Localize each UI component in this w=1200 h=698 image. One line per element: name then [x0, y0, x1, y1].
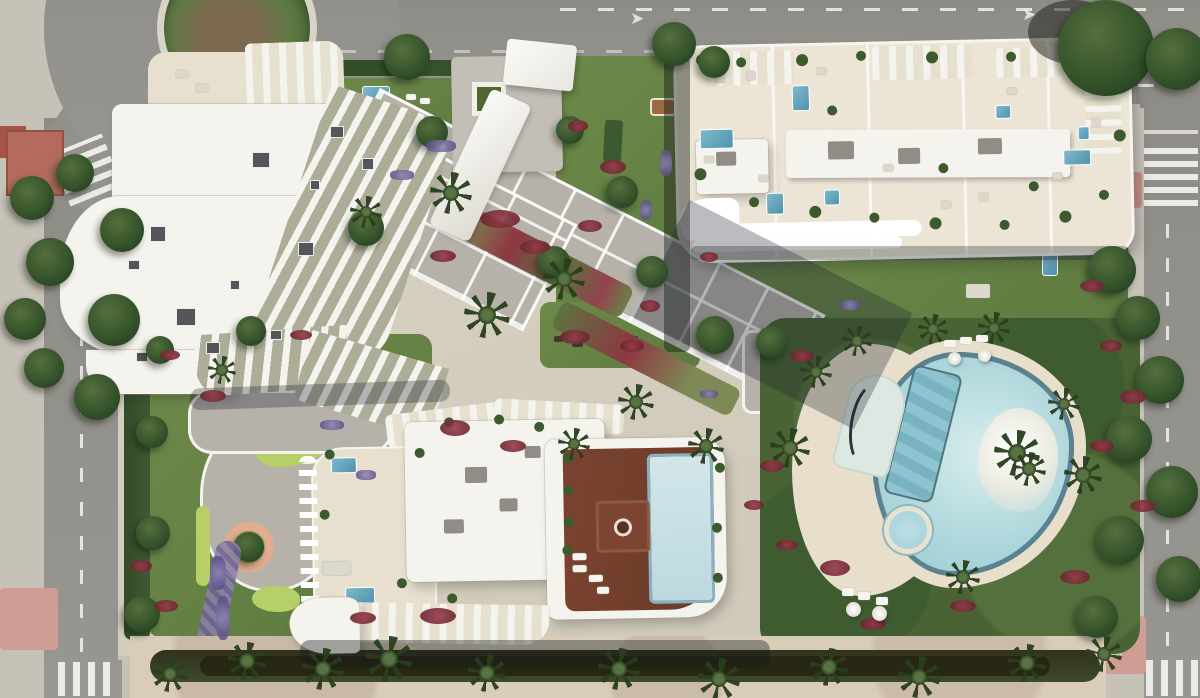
sun-lounger — [976, 335, 988, 342]
minigolf-green-3 — [252, 586, 300, 612]
flower-bed-red — [820, 560, 850, 576]
flower-bed-purple — [700, 390, 718, 398]
flower-bed-red — [560, 330, 590, 344]
tree-canopy — [1106, 416, 1152, 462]
palm-tree — [558, 428, 590, 460]
roof-plant — [827, 105, 837, 115]
sun-lounger — [573, 565, 587, 572]
sun-lounger — [858, 592, 870, 600]
flower-bed-red — [350, 612, 376, 624]
palm-tree — [208, 356, 236, 384]
garden-shed — [603, 120, 623, 163]
roof-plant — [1099, 190, 1109, 200]
flower-bed-purple — [320, 420, 344, 430]
tree-canopy — [698, 46, 730, 78]
plunge-pool — [995, 105, 1011, 119]
palm-tree — [1064, 456, 1102, 494]
b1-garden-lounger — [420, 98, 430, 104]
kids-pool — [884, 506, 932, 554]
flower-bed-red — [760, 460, 784, 472]
flower-bed-purple — [390, 170, 414, 180]
palm-tree — [688, 428, 724, 464]
tree-canopy — [756, 326, 788, 358]
palm-tree — [1086, 636, 1122, 672]
pink-paving-left-a — [0, 588, 58, 650]
palm-tree — [598, 648, 640, 690]
flower-bed-red — [640, 300, 660, 312]
roof-unit — [444, 519, 464, 533]
roof-furniture — [979, 192, 988, 201]
tree-canopy — [1116, 296, 1160, 340]
roof-plant — [929, 217, 941, 229]
roof-furniture — [1091, 118, 1100, 127]
sun-lounger — [589, 575, 603, 582]
sun-lounger — [960, 337, 972, 344]
flower-bed-red — [290, 330, 312, 340]
roof-furniture — [1053, 173, 1063, 180]
palm-tree — [918, 314, 948, 344]
b2-pergola — [872, 45, 973, 81]
tree-canopy — [384, 34, 430, 80]
tree-canopy — [636, 256, 668, 288]
flower-bed-purple — [216, 596, 230, 640]
flower-bed-red — [480, 210, 520, 228]
crosswalk-right-bottom — [1146, 660, 1200, 696]
flower-bed-red — [200, 390, 226, 402]
tree-canopy — [10, 176, 54, 220]
tree-canopy — [1156, 556, 1200, 602]
flower-bed-red — [130, 560, 152, 572]
tree-canopy — [606, 176, 638, 208]
b3-dining-table — [323, 561, 351, 575]
crosswalk-left-bottom — [58, 662, 116, 696]
garden-furniture — [966, 284, 990, 298]
flower-bed-purple — [640, 200, 652, 220]
plunge-pool — [766, 193, 784, 215]
roof-unit — [525, 446, 541, 458]
roof-unit — [465, 467, 487, 483]
flower-bed-red — [776, 540, 798, 550]
b2-roof-unit — [898, 148, 920, 164]
rooftop-vent — [230, 280, 240, 290]
palm-tree — [1008, 644, 1046, 682]
tree-canopy — [696, 316, 734, 354]
roof-plant — [534, 422, 544, 432]
tree-canopy — [136, 516, 170, 550]
b3-plunge-pool-north — [331, 457, 357, 473]
flower-bed-red — [1120, 390, 1146, 404]
palm-tree — [302, 648, 344, 690]
flower-bed-red — [568, 120, 588, 132]
parasol — [978, 349, 991, 362]
flower-bed-red — [160, 350, 180, 360]
rooftop-vent — [206, 342, 220, 354]
roof-plant — [1114, 129, 1126, 141]
rooftop-vent — [150, 226, 166, 242]
flower-bed-red — [440, 420, 470, 436]
sun-lounger — [572, 553, 586, 560]
tree-canopy — [100, 208, 144, 252]
flower-bed-purple — [660, 150, 672, 176]
flower-bed-red — [578, 220, 602, 232]
palm-tree — [430, 172, 472, 214]
tree-canopy — [1146, 28, 1200, 90]
flower-bed-red — [1060, 570, 1090, 584]
rooftop-vent — [270, 330, 282, 340]
palm-tree — [350, 196, 382, 228]
flower-bed-purple — [426, 140, 456, 152]
flower-bed-red — [500, 440, 526, 452]
flower-bed-purple — [210, 556, 226, 590]
b1-terrace-furniture — [196, 84, 208, 92]
tree-canopy — [26, 238, 74, 286]
plunge-pool — [1078, 126, 1090, 140]
parasol — [846, 602, 861, 617]
flower-bed-red — [700, 252, 718, 262]
plunge-pool — [700, 129, 734, 150]
flower-bed-red — [620, 340, 644, 352]
roof-plant — [809, 206, 821, 218]
roof-plant — [563, 485, 573, 495]
flower-bed-red — [420, 608, 456, 624]
roof-unit — [499, 498, 517, 511]
tree-canopy — [1058, 0, 1154, 96]
palm-tree — [543, 258, 585, 300]
rooftop-vent — [176, 308, 196, 326]
palm-tree — [152, 656, 188, 692]
palm-tree — [898, 656, 940, 698]
tree-canopy — [88, 294, 140, 346]
road-arrow-icon: ➤ — [630, 10, 644, 27]
flower-bed-red — [600, 160, 626, 174]
palm-tree — [366, 636, 412, 682]
flower-bed-red — [430, 250, 456, 262]
minigolf-green-2-stem — [196, 506, 210, 586]
palm-tree — [1048, 388, 1080, 420]
b2-roof-unit — [978, 138, 1002, 154]
roof-plant — [447, 593, 457, 603]
b1-garden-lounger — [406, 94, 416, 100]
tree-canopy — [124, 596, 160, 632]
parasol — [872, 606, 887, 621]
flower-bed-red — [790, 350, 814, 362]
roof-plant — [1029, 181, 1039, 191]
b2-roof-unit — [828, 141, 854, 160]
palm-tree — [842, 326, 872, 356]
roof-furniture — [758, 175, 768, 182]
rooftop-vent — [362, 158, 374, 170]
flower-bed-red — [154, 600, 178, 612]
rooftop-vent — [128, 260, 140, 270]
b3-rooftop-pool — [647, 453, 716, 604]
flower-bed-purple — [840, 300, 860, 310]
flower-bed-red — [1080, 280, 1104, 292]
parasol — [948, 352, 961, 365]
rooftop-vent — [298, 242, 314, 256]
flower-bed-red — [744, 500, 764, 510]
palm-tree — [946, 560, 980, 594]
roof-plant — [856, 51, 866, 61]
roof-furniture — [816, 68, 826, 75]
flower-bed-red — [1130, 500, 1156, 512]
flower-bed-red — [1100, 340, 1122, 352]
stop-line-right — [1140, 130, 1198, 134]
b3-west-ribs — [299, 456, 320, 616]
palm-tree — [464, 292, 510, 338]
tree-canopy — [24, 348, 64, 388]
rooftop-vent — [310, 180, 320, 190]
tree-canopy — [1076, 596, 1118, 638]
roof-plant — [796, 54, 808, 66]
shadow-b2-south — [690, 246, 1130, 260]
white-canopy — [503, 38, 577, 91]
plunge-pool — [792, 85, 811, 111]
palm-tree — [810, 648, 848, 686]
sun-lounger — [842, 588, 854, 596]
palm-tree — [228, 642, 266, 680]
tree-canopy — [236, 316, 266, 346]
roof-furniture — [704, 156, 714, 163]
roof-plant — [562, 545, 572, 555]
roof-plant — [749, 197, 759, 207]
aerial-render-scene: ➤ ➤ — [0, 0, 1200, 698]
flower-bed-purple — [356, 470, 376, 480]
b2-roof-unit — [716, 152, 736, 166]
palm-tree — [618, 384, 654, 420]
crosswalk-right-top — [1140, 148, 1198, 206]
flower-bed-red — [950, 600, 976, 612]
tree-canopy — [4, 298, 46, 340]
roof-plant — [999, 220, 1009, 230]
tree-canopy — [74, 374, 120, 420]
b1-roof-terrace — [148, 52, 252, 112]
tree-canopy — [136, 416, 168, 448]
tree-canopy — [1146, 466, 1198, 518]
palm-tree — [1012, 452, 1046, 486]
palm-tree — [468, 654, 506, 692]
rooftop-vent — [330, 126, 344, 138]
palm-tree — [698, 658, 740, 698]
b1-terrace-furniture — [176, 70, 188, 78]
flower-bed-red — [1090, 440, 1114, 452]
tree-canopy — [652, 22, 696, 66]
tree-canopy — [56, 154, 94, 192]
plunge-pool — [824, 189, 840, 205]
roof-furniture — [1007, 88, 1017, 95]
sun-lounger — [597, 587, 609, 594]
sun-lounger — [944, 340, 956, 347]
sun-lounger — [876, 597, 888, 605]
roof-furniture — [746, 71, 755, 80]
flower-bed-red — [520, 240, 550, 254]
roof-furniture — [941, 201, 951, 208]
plunge-pool — [1063, 149, 1091, 166]
tree-canopy — [1096, 516, 1144, 564]
rooftop-vent — [252, 152, 270, 168]
roof-plant — [1059, 211, 1071, 223]
roof-furniture — [883, 164, 893, 171]
